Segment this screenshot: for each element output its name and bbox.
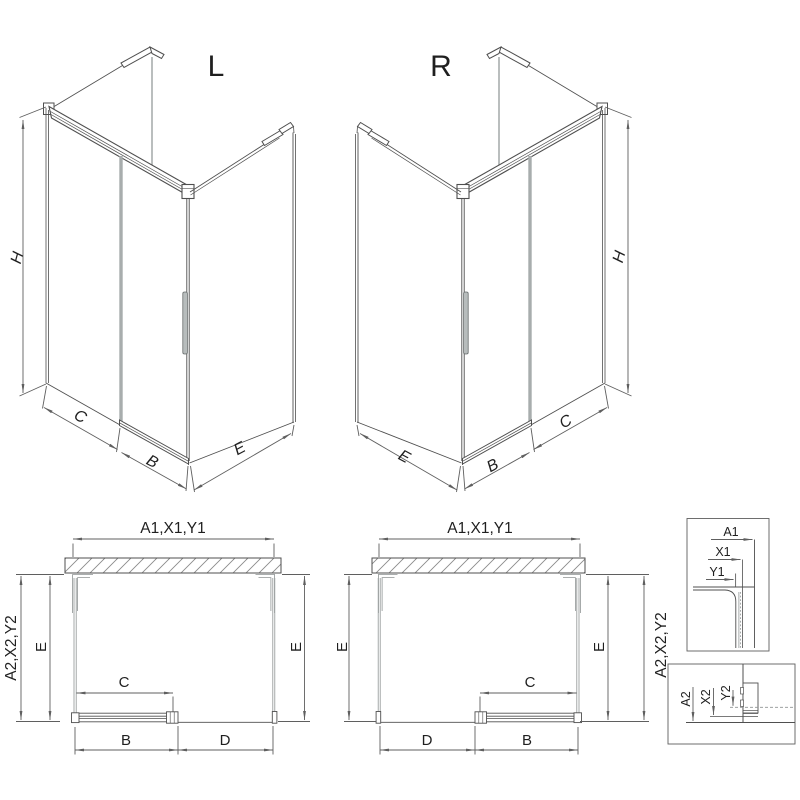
iso-view-left: L H C B E xyxy=(8,47,296,492)
detail-bottom-dim-a: A2 xyxy=(679,691,693,706)
plan-left-dim-door: B xyxy=(121,732,131,749)
plan-right-dim-depth-right: E xyxy=(591,642,608,652)
detail-top-dim-y: Y1 xyxy=(709,565,724,579)
iso-view-right: R H E B C xyxy=(356,47,632,492)
plan-right-dim-width-outer: A2,X2,Y2 xyxy=(653,612,670,678)
detail-top-dim-a: A1 xyxy=(723,525,738,539)
plan-left-side-dims xyxy=(16,575,310,722)
detail-view-bottom-rail: A2 X2 Y2 xyxy=(668,664,795,744)
iso-left-title: L xyxy=(208,50,225,83)
iso-right-dim-panel: C xyxy=(557,412,576,433)
detail-top-dim-x: X1 xyxy=(715,545,730,559)
plan-left-dim-width-wall: A1,X1,Y1 xyxy=(140,520,206,537)
technical-drawing-page: L H C B E R H E B C A1,X1,Y1 A2,X2,Y2 E … xyxy=(0,0,800,800)
plan-left-dim-depth-left: E xyxy=(33,642,50,652)
detail-bottom-dim-x: X2 xyxy=(699,689,713,704)
iso-left-dim-door: B xyxy=(143,452,161,472)
plan-left-dim-fixed: D xyxy=(220,732,231,749)
detail-view-wall-profile: A1 X1 Y1 xyxy=(687,519,769,652)
drawing-canvas: L H C B E R H E B C A1,X1,Y1 A2,X2,Y2 E … xyxy=(0,0,800,800)
iso-right-dim-door: B xyxy=(484,456,502,476)
plan-left-dim-width-outer: A2,X2,Y2 xyxy=(3,615,20,681)
plan-left-dim-clear: C xyxy=(119,674,130,691)
iso-right-dim-side: E xyxy=(395,447,413,467)
plan-right-dim-door: B xyxy=(522,732,532,749)
iso-right-dim-height: H xyxy=(610,249,630,265)
plan-right-dim-depth-left: E xyxy=(334,642,351,652)
plan-right-wall xyxy=(372,558,585,573)
plan-right-dim-fixed: D xyxy=(422,732,433,749)
plan-view-right: A1,X1,Y1 E E A2,X2,Y2 C D B xyxy=(334,520,670,755)
plan-right-dim-clear: C xyxy=(525,674,536,691)
detail-bottom-dim-y: Y2 xyxy=(719,685,733,700)
iso-left-dim-side: E xyxy=(231,439,249,459)
iso-right-title: R xyxy=(430,50,452,83)
plan-view-left: A1,X1,Y1 A2,X2,Y2 E E C B D xyxy=(3,520,310,755)
plan-right-dim-width-wall: A1,X1,Y1 xyxy=(447,520,513,537)
iso-left-dim-height: H xyxy=(8,250,28,266)
plan-left-dim-depth-right: E xyxy=(288,642,305,652)
plan-left-wall xyxy=(65,558,281,573)
